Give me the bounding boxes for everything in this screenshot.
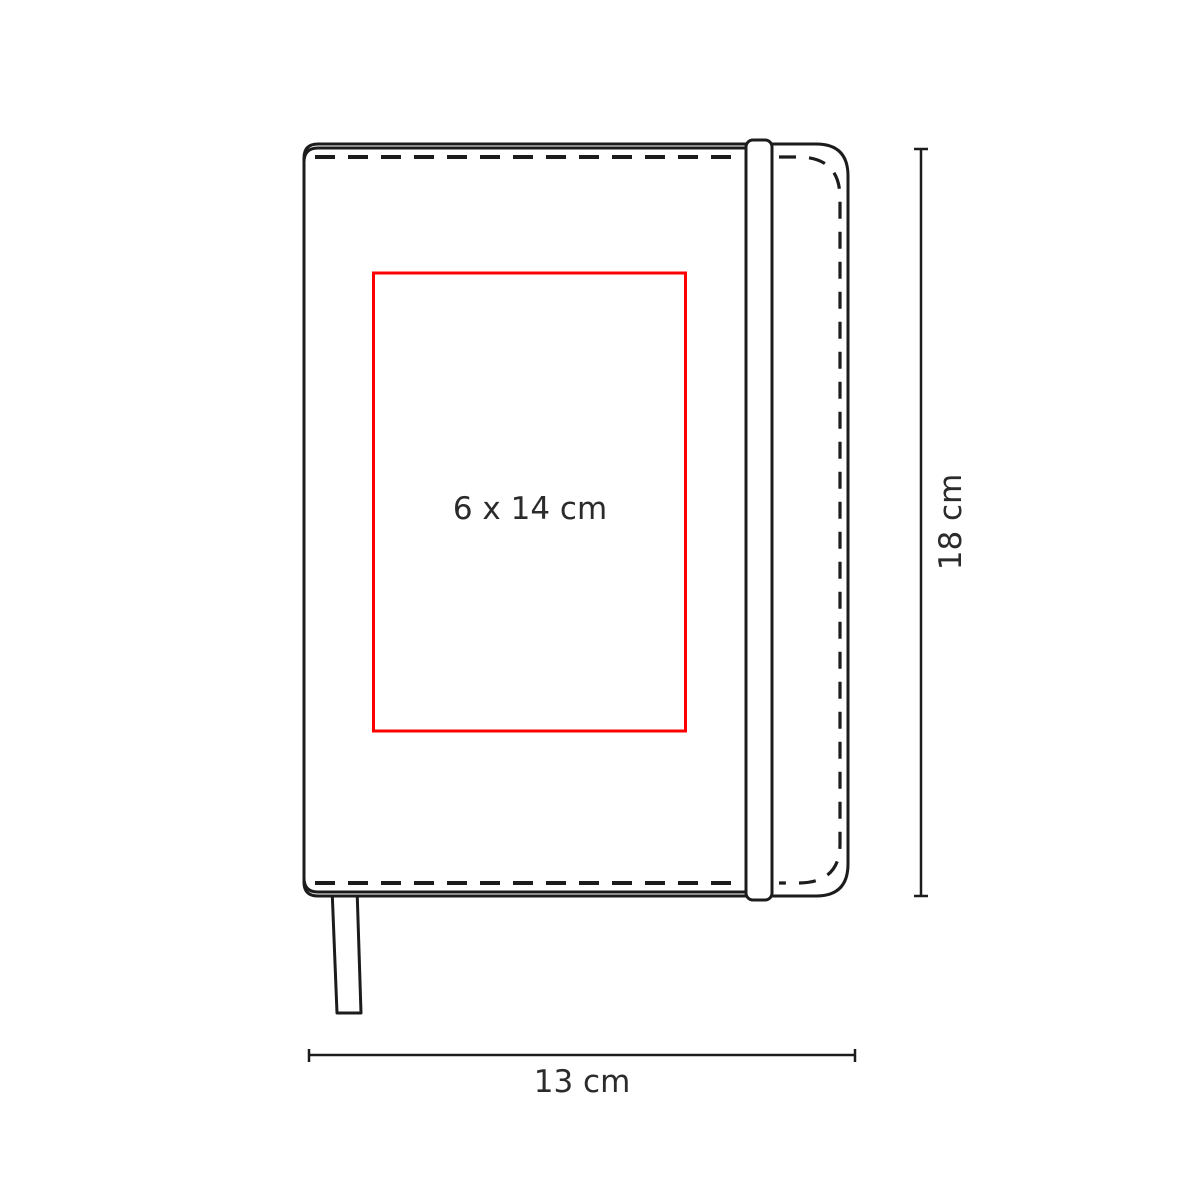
height-dimension-label: 18 cm [933,474,969,571]
width-dimension-label: 13 cm [534,1064,631,1100]
width-dimension: 13 cm [309,1049,855,1100]
print-area-label: 6 x 14 cm [453,491,607,527]
diagram-svg: 6 x 14 cm 18 cm 13 cm [0,0,1200,1200]
notebook-dimension-diagram: 6 x 14 cm 18 cm 13 cm [0,0,1200,1200]
height-dimension-line [914,149,928,896]
height-dimension: 18 cm [914,149,969,896]
elastic-band [746,140,772,900]
bookmark-ribbon [332,888,361,1013]
width-dimension-line [309,1049,855,1062]
